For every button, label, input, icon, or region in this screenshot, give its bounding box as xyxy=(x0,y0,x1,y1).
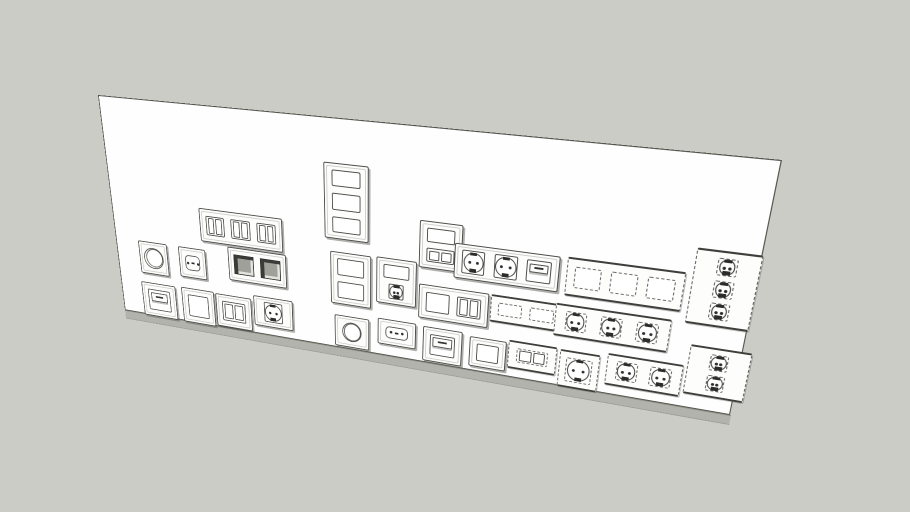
schuko-socket-surround xyxy=(708,302,730,322)
fixture-flap-socket-b xyxy=(422,326,463,367)
ground-clip-top xyxy=(658,369,666,373)
module-blank xyxy=(424,225,459,247)
module-blank xyxy=(423,289,453,318)
blank-opening xyxy=(425,291,449,315)
double-rocker-switch xyxy=(457,296,482,320)
pin-hole xyxy=(476,262,479,265)
ground-clip-bottom xyxy=(502,273,509,278)
fixture-frame-triple-v-blank xyxy=(323,162,368,244)
pin-hole xyxy=(275,313,278,316)
ground-clip-bottom xyxy=(710,386,718,391)
rocker-key xyxy=(208,218,215,234)
flap-socket-face xyxy=(525,260,552,285)
schuko-socket-face xyxy=(616,362,636,381)
ground-clip-top xyxy=(716,304,724,308)
schuko-socket-face xyxy=(650,368,671,387)
ground-clip-top xyxy=(270,304,276,307)
pin-hole xyxy=(722,266,726,270)
module-schuko xyxy=(490,252,522,282)
blank-opening xyxy=(332,216,361,236)
blank-opening xyxy=(497,302,522,319)
module-blank xyxy=(495,300,525,321)
rocker-key xyxy=(441,252,451,263)
pin-hole xyxy=(642,331,646,334)
fixture-keystone-double xyxy=(227,247,287,289)
pin-hole xyxy=(581,370,584,373)
module-blank xyxy=(473,341,502,366)
pin-hole xyxy=(393,291,396,294)
render-viewport xyxy=(0,0,910,512)
pin-hole xyxy=(401,333,404,336)
flap-slot xyxy=(155,296,163,299)
flap-slot xyxy=(438,342,447,345)
ground-clip-top xyxy=(644,324,652,328)
pin-hole xyxy=(649,332,653,335)
schuko-socket-surround xyxy=(388,283,403,300)
fixture-rocker-switch-a xyxy=(215,293,253,331)
module-keystone xyxy=(232,251,257,279)
pin-hole xyxy=(577,322,580,325)
rocker-key xyxy=(532,353,545,365)
module-rocker2 xyxy=(423,246,457,268)
module-keystone xyxy=(258,255,283,284)
ground-clip-top xyxy=(503,257,510,261)
ground-clip-bottom xyxy=(622,376,630,381)
blank-opening xyxy=(337,258,363,279)
ground-clip-bottom xyxy=(571,326,578,331)
module-blank xyxy=(381,261,413,283)
module-schuko xyxy=(562,355,595,386)
double-rocker-switch xyxy=(230,219,250,242)
pin-hole xyxy=(728,267,732,271)
wall-panel xyxy=(98,95,782,415)
module-schuko xyxy=(257,300,289,327)
fixture-blank-plate-b xyxy=(468,336,507,372)
ground-clip-top xyxy=(624,363,631,367)
double-rocker-switch xyxy=(256,222,276,245)
fixture-frame-triple-h-blank-dashed xyxy=(564,257,687,312)
module-euro xyxy=(382,323,412,345)
blank-opening xyxy=(427,227,455,245)
schuko-socket-surround xyxy=(564,357,593,385)
pin-hole xyxy=(572,369,575,372)
ground-clip-top xyxy=(712,376,720,380)
blank-opening xyxy=(573,266,602,292)
blank-opening xyxy=(384,263,410,281)
fixture-rocker-switch-dashed xyxy=(507,340,558,376)
pin-hole xyxy=(468,261,471,264)
fixture-frame-triple-h-schuko-dashed xyxy=(553,303,672,353)
center-mark xyxy=(395,332,398,334)
module-schuko xyxy=(381,281,412,303)
schuko-socket-face xyxy=(601,318,622,338)
fixture-flap-socket-a xyxy=(141,281,178,320)
ground-clip-bottom xyxy=(271,318,277,322)
ground-clip-top xyxy=(573,313,580,317)
fixture-frame-double-h-rocker xyxy=(418,283,489,328)
schuko-socket-surround xyxy=(615,361,638,383)
schuko-socket-face xyxy=(709,304,728,321)
module-blank xyxy=(328,167,364,192)
blank-opening xyxy=(608,271,638,297)
ground-clip-bottom xyxy=(393,295,399,299)
blank-opening xyxy=(338,281,364,301)
double-rocker-switch xyxy=(515,348,548,368)
keystone-recess xyxy=(233,255,254,277)
module-schuko xyxy=(643,365,678,391)
module-schuko xyxy=(610,359,644,385)
pin-hole xyxy=(714,311,718,314)
keystone-recess xyxy=(259,258,281,280)
ground-clip-bottom xyxy=(714,366,722,371)
module-rocker2 xyxy=(228,216,253,244)
pin-hole xyxy=(718,289,722,292)
module-dimmer xyxy=(142,245,165,272)
module-blank xyxy=(605,268,642,300)
schuko-socket-surround xyxy=(712,280,734,300)
module-rocker2 xyxy=(203,213,228,241)
ground-clip-bottom xyxy=(655,382,663,387)
fixture-euro-socket-a xyxy=(178,246,207,280)
module-schuko xyxy=(558,309,592,335)
pin-hole xyxy=(613,327,616,330)
rocker-key xyxy=(469,301,478,318)
schuko-socket-surround xyxy=(564,311,587,333)
pin-hole xyxy=(390,331,393,334)
module-dimmer xyxy=(339,319,365,346)
ground-clip-top xyxy=(470,252,477,256)
schuko-socket-face xyxy=(463,251,484,274)
ground-clip-bottom xyxy=(722,271,731,276)
pin-hole xyxy=(655,376,659,379)
schuko-socket-face xyxy=(709,355,728,372)
schuko-socket-surround xyxy=(704,375,725,394)
fixture-frame-double-h-schuko-dashed xyxy=(604,353,684,397)
schuko-socket-surround xyxy=(708,354,729,373)
ground-clip-bottom xyxy=(714,315,722,320)
rocker-key xyxy=(234,305,243,322)
fixture-schuko-socket-dashed xyxy=(557,349,601,393)
fixture-switch-row-triple xyxy=(198,208,283,253)
module-schuko xyxy=(593,314,629,340)
module-blank xyxy=(526,305,557,326)
blank-opening xyxy=(188,294,210,319)
schuko-socket-face xyxy=(713,281,733,298)
euro-socket-face xyxy=(385,326,408,342)
schuko-socket-surround xyxy=(599,316,623,339)
rocker-key xyxy=(241,223,248,239)
blank-opening xyxy=(529,307,555,324)
pin-hole xyxy=(714,362,718,365)
pin-hole xyxy=(196,263,199,266)
module-blank xyxy=(335,279,367,304)
schuko-socket-surround xyxy=(716,258,739,278)
double-rocker-switch xyxy=(426,248,454,266)
fixture-frame-triple-h-schuko-flap xyxy=(453,243,560,293)
schuko-socket-face xyxy=(717,259,737,277)
blank-opening xyxy=(476,343,500,364)
flap-slot xyxy=(535,267,544,270)
pin-hole xyxy=(628,372,631,375)
euro-socket-face xyxy=(185,254,201,272)
schuko-socket-face xyxy=(495,256,517,279)
pin-hole xyxy=(570,321,573,324)
rocker-key xyxy=(225,303,234,320)
ground-clip-bottom xyxy=(718,293,727,298)
fixture-frame-double-v-schuko-dashed xyxy=(682,344,752,403)
pin-hole xyxy=(397,292,400,295)
module-flap xyxy=(145,286,174,316)
schuko-socket-surround xyxy=(493,254,518,280)
rocker-key xyxy=(233,222,240,238)
ground-clip-bottom xyxy=(642,337,650,342)
schuko-socket-surround xyxy=(264,302,284,324)
blank-opening xyxy=(331,169,361,189)
module-blank xyxy=(328,191,364,216)
fixture-frame-double-v-blank xyxy=(330,251,371,309)
ground-clip-top xyxy=(720,282,728,286)
pin-hole xyxy=(269,311,272,314)
module-flap xyxy=(427,331,458,362)
rocker-key xyxy=(518,351,531,363)
ground-clip-bottom xyxy=(606,332,614,337)
pin-hole xyxy=(724,289,728,292)
pin-hole xyxy=(508,267,511,270)
rocker-key xyxy=(459,299,468,316)
pin-hole xyxy=(719,363,723,366)
schuko-socket-face xyxy=(706,376,725,392)
dimmer-knob-top xyxy=(344,322,361,342)
flap-lid xyxy=(529,263,549,274)
module-schuko xyxy=(458,248,489,278)
schuko-socket-surround xyxy=(635,322,659,345)
schuko-socket-face xyxy=(566,312,586,331)
ground-clip-bottom xyxy=(470,269,477,274)
fixture-schuko-socket-a xyxy=(253,295,293,331)
schuko-socket-face xyxy=(566,359,591,384)
flap-lid xyxy=(151,292,168,304)
module-rocker2 xyxy=(254,220,279,248)
schuko-socket-surround xyxy=(648,367,672,389)
ground-clip-top xyxy=(724,259,733,263)
ground-clip-top xyxy=(576,360,583,364)
module-rocker2 xyxy=(454,293,485,323)
ground-clip-bottom xyxy=(574,377,581,382)
pin-hole xyxy=(715,383,719,386)
rocker-key xyxy=(267,226,274,242)
fixture-dimmer-a xyxy=(138,240,170,277)
pin-hole xyxy=(720,311,724,314)
module-euro xyxy=(182,251,203,276)
fixture-frame-triple-v-schuko-dashed xyxy=(685,247,764,332)
flap-lid xyxy=(433,337,452,349)
module-schuko xyxy=(691,299,747,325)
fixture-blank-plate-a xyxy=(181,287,216,327)
blank-opening xyxy=(331,193,360,213)
ground-clip-top xyxy=(608,319,616,323)
rocker-key xyxy=(215,219,222,235)
pin-hole xyxy=(186,261,189,264)
double-rocker-switch xyxy=(222,300,246,324)
schuko-socket-face xyxy=(265,303,282,322)
module-flap xyxy=(523,257,556,287)
dimmer-knob xyxy=(342,321,362,344)
rocker-key xyxy=(259,225,266,241)
fixture-frame-double-v-schuko xyxy=(376,256,417,308)
flap-socket-face xyxy=(148,288,172,312)
fixture-dimmer-b xyxy=(335,314,370,351)
schuko-socket-surround xyxy=(461,250,485,276)
module-blank xyxy=(329,214,364,238)
module-schuko xyxy=(629,320,666,347)
pin-hole xyxy=(662,377,666,380)
pin-hole xyxy=(710,383,714,386)
module-rocker2 xyxy=(219,298,248,327)
blank-opening xyxy=(645,276,677,303)
ground-clip-top xyxy=(393,285,399,289)
rocker-key xyxy=(429,250,439,261)
module-blank xyxy=(185,291,212,322)
center-mark xyxy=(191,262,194,264)
pin-hole xyxy=(500,265,503,268)
dimmer-knob-top xyxy=(145,248,163,269)
schuko-socket-face xyxy=(389,284,402,299)
module-blank xyxy=(642,273,681,305)
module-blank xyxy=(335,256,367,281)
double-rocker-switch xyxy=(205,215,225,238)
pin-hole xyxy=(621,370,624,373)
module-blank xyxy=(570,263,606,295)
dimmer-knob xyxy=(143,247,164,271)
module-schuko xyxy=(699,254,757,281)
flap-socket-face xyxy=(429,334,455,359)
fixture-euro-socket-b xyxy=(378,318,417,350)
fixture-frame-double-h-dashed xyxy=(489,294,563,332)
schuko-socket-face xyxy=(637,323,658,343)
pin-hole xyxy=(606,326,609,329)
module-rocker2 xyxy=(512,346,552,370)
ground-clip-top xyxy=(716,356,724,360)
